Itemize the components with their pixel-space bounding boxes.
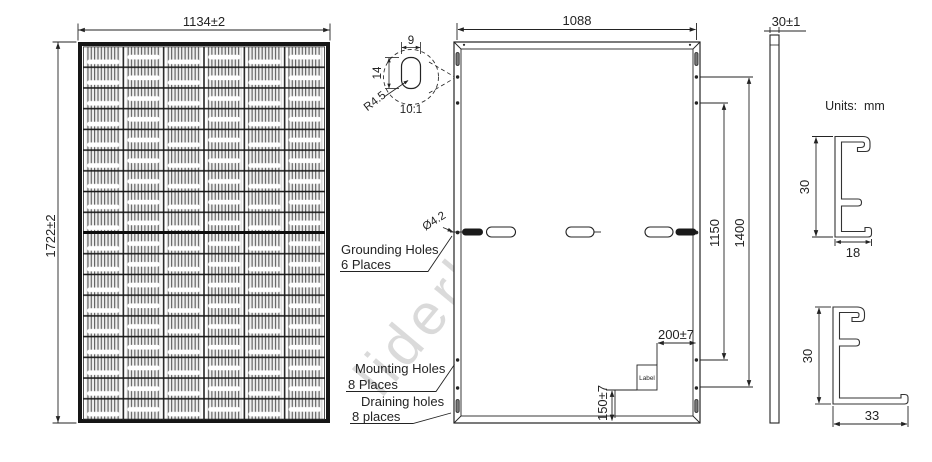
solar-panel-technical-drawing: liderlamp.pl 1134±2 1722±2 xyxy=(0,0,932,462)
dim-150-text: 150±7 xyxy=(595,385,610,421)
top-profile-foot-text: 18 xyxy=(846,245,860,260)
mounting-hole xyxy=(456,358,459,361)
front-view: 1134±2 1722±2 xyxy=(43,14,330,423)
mounting-label-1: Mounting Holes xyxy=(355,361,446,376)
back-view: 1088 xyxy=(340,13,753,424)
mounting-hole xyxy=(695,101,698,104)
draining-label-1: Draining holes xyxy=(361,394,445,409)
draining-hole xyxy=(456,386,459,389)
mounting-hole xyxy=(695,358,698,361)
dim-1150-text: 1150 xyxy=(707,219,722,247)
back-width-dim-text: 1088 xyxy=(563,13,592,28)
frame-profile-bottom: 30 33 xyxy=(800,307,908,427)
front-height-dim-text: 1722±2 xyxy=(43,214,58,257)
draining-callout: Draining holes 8 places xyxy=(350,394,451,424)
units-note: Units: mm xyxy=(825,99,885,113)
mounting-label-2: 8 Places xyxy=(348,377,398,392)
front-width-dim-text: 1134±2 xyxy=(183,14,225,29)
mounting-hole xyxy=(695,75,698,78)
dim-1400-text: 1400 xyxy=(732,219,747,248)
grounding-hole xyxy=(456,231,460,235)
grounding-dia-text: Ø4.2 xyxy=(421,210,448,234)
label-box-text: Label xyxy=(639,375,655,382)
bottom-profile-foot-text: 33 xyxy=(865,408,879,423)
draining-hole xyxy=(695,386,698,389)
top-profile-height-text: 30 xyxy=(797,180,812,194)
detail-slot-width-text: 9 xyxy=(408,35,414,47)
detail-slot-height-text: 14 xyxy=(372,66,384,79)
dim-200-text: 200±7 xyxy=(658,327,694,342)
draining-label-2: 8 places xyxy=(352,409,401,424)
bottom-profile-height-text: 30 xyxy=(800,349,815,363)
detail-scale-text: 10:1 xyxy=(400,104,422,116)
mounting-hole xyxy=(456,75,459,78)
bottom-profile-dimensions xyxy=(815,307,908,427)
detail-radius-text: R4.5 xyxy=(362,89,389,113)
drawing-svg: liderlamp.pl 1134±2 1722±2 xyxy=(0,0,932,462)
grounding-label-1: Grounding Holes xyxy=(341,242,439,257)
side-thickness-dim-text: 30±1 xyxy=(772,14,801,29)
mounting-hole xyxy=(456,101,459,104)
detail-bubble: 9 14 R4.5 10:1 xyxy=(362,35,454,116)
grounding-label-2: 6 Places xyxy=(341,257,391,272)
half-cell-center-divider xyxy=(83,231,325,234)
frame-profile-top: 30 18 xyxy=(797,137,872,261)
